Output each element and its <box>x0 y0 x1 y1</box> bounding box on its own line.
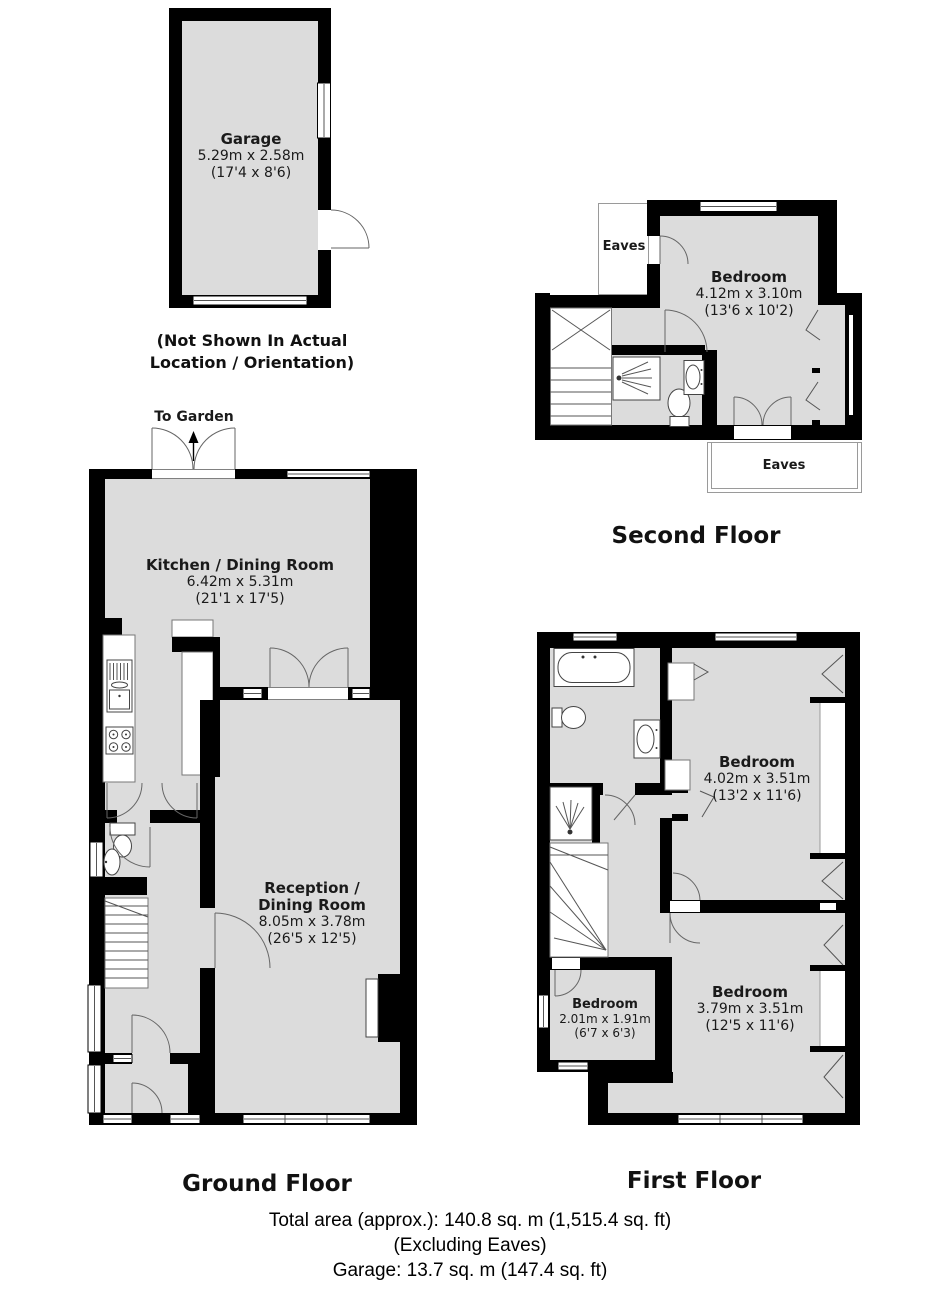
room-dim-metric: 4.02m x 3.51m <box>704 771 811 788</box>
stairs-icon <box>105 898 148 988</box>
room-name-line-1: Reception / <box>258 880 366 897</box>
shower-icon <box>613 357 660 400</box>
stairs-icon <box>550 308 612 425</box>
shower-icon <box>550 787 592 840</box>
basin-icon <box>684 361 704 395</box>
floorplan-drawing <box>0 0 940 1301</box>
garden-arrow-icon <box>189 431 199 461</box>
room-dim-imperial: (26'5 x 12'5) <box>258 931 366 948</box>
note-line-2: Location / Orientation) <box>150 352 354 374</box>
second-floor-bedroom-label: Bedroom 4.12m x 3.10m (13'6 x 10'2) <box>696 269 803 320</box>
room-name: Kitchen / Dining Room <box>146 557 334 574</box>
room-name-line-2: Dining Room <box>258 897 366 914</box>
room-dim-imperial: (6'7 x 6'3) <box>559 1026 651 1040</box>
eaves-label-bottom: Eaves <box>763 458 806 473</box>
room-dim-imperial: (12'5 x 11'6) <box>697 1018 804 1035</box>
second-floor-title: Second Floor <box>612 523 781 549</box>
summary-total-area: Total area (approx.): 140.8 sq. m (1,515… <box>269 1208 671 1233</box>
room-name: Bedroom <box>697 984 804 1001</box>
room-dim-imperial: (21'1 x 17'5) <box>146 591 334 608</box>
bath-icon <box>554 649 634 687</box>
bedroom-back-label: Bedroom 3.79m x 3.51m (12'5 x 11'6) <box>697 984 804 1035</box>
room-name: Garage <box>198 131 305 148</box>
room-dim-metric: 8.05m x 3.78m <box>258 914 366 931</box>
basin-icon <box>104 849 120 875</box>
summary-garage-area: Garage: 13.7 sq. m (147.4 sq. ft) <box>269 1258 671 1283</box>
bedroom-small-label: Bedroom 2.01m x 1.91m (6'7 x 6'3) <box>559 998 651 1040</box>
room-name: Bedroom <box>704 754 811 771</box>
ground-floor-plan <box>88 428 417 1125</box>
hob-icon <box>106 727 133 754</box>
floorplan-page: Garage 5.29m x 2.58m (17'4 x 8'6) (Not S… <box>0 0 940 1301</box>
garage-door <box>318 210 369 250</box>
basin-icon <box>634 720 660 758</box>
garage-window <box>318 83 331 138</box>
area-summary: Total area (approx.): 140.8 sq. m (1,515… <box>269 1208 671 1283</box>
room-dim-imperial: (13'6 x 10'2) <box>696 303 803 320</box>
reception-label: Reception / Dining Room 8.05m x 3.78m (2… <box>258 880 366 948</box>
room-dim-imperial: (13'2 x 11'6) <box>704 788 811 805</box>
sink-icon <box>107 660 132 712</box>
room-dim-metric: 6.42m x 5.31m <box>146 574 334 591</box>
garage-room-label: Garage 5.29m x 2.58m (17'4 x 8'6) <box>198 131 305 182</box>
summary-excluding-eaves: (Excluding Eaves) <box>269 1233 671 1258</box>
to-garden-label: To Garden <box>154 409 234 425</box>
note-line-1: (Not Shown In Actual <box>150 330 354 352</box>
second-floor-plan <box>535 200 862 493</box>
first-floor-title: First Floor <box>627 1168 761 1194</box>
first-floor-plan <box>537 632 860 1125</box>
room-dim-imperial: (17'4 x 8'6) <box>198 165 305 182</box>
room-dim-metric: 3.79m x 3.51m <box>697 1001 804 1018</box>
second-floor-window <box>700 202 777 212</box>
room-name: Bedroom <box>696 269 803 286</box>
toilet-icon <box>552 707 586 729</box>
room-dim-metric: 5.29m x 2.58m <box>198 148 305 165</box>
kitchen-label: Kitchen / Dining Room 6.42m x 5.31m (21'… <box>146 557 334 608</box>
ground-floor-title: Ground Floor <box>182 1171 352 1197</box>
bedroom-front-label: Bedroom 4.02m x 3.51m (13'2 x 11'6) <box>704 754 811 805</box>
eaves-label-top: Eaves <box>603 239 646 254</box>
room-name: Bedroom <box>559 998 651 1012</box>
stairs-icon <box>550 843 608 957</box>
room-dim-metric: 2.01m x 1.91m <box>559 1012 651 1026</box>
garage-vehicle-door <box>193 296 307 305</box>
garage-note: (Not Shown In Actual Location / Orientat… <box>150 330 354 374</box>
room-dim-metric: 4.12m x 3.10m <box>696 286 803 303</box>
